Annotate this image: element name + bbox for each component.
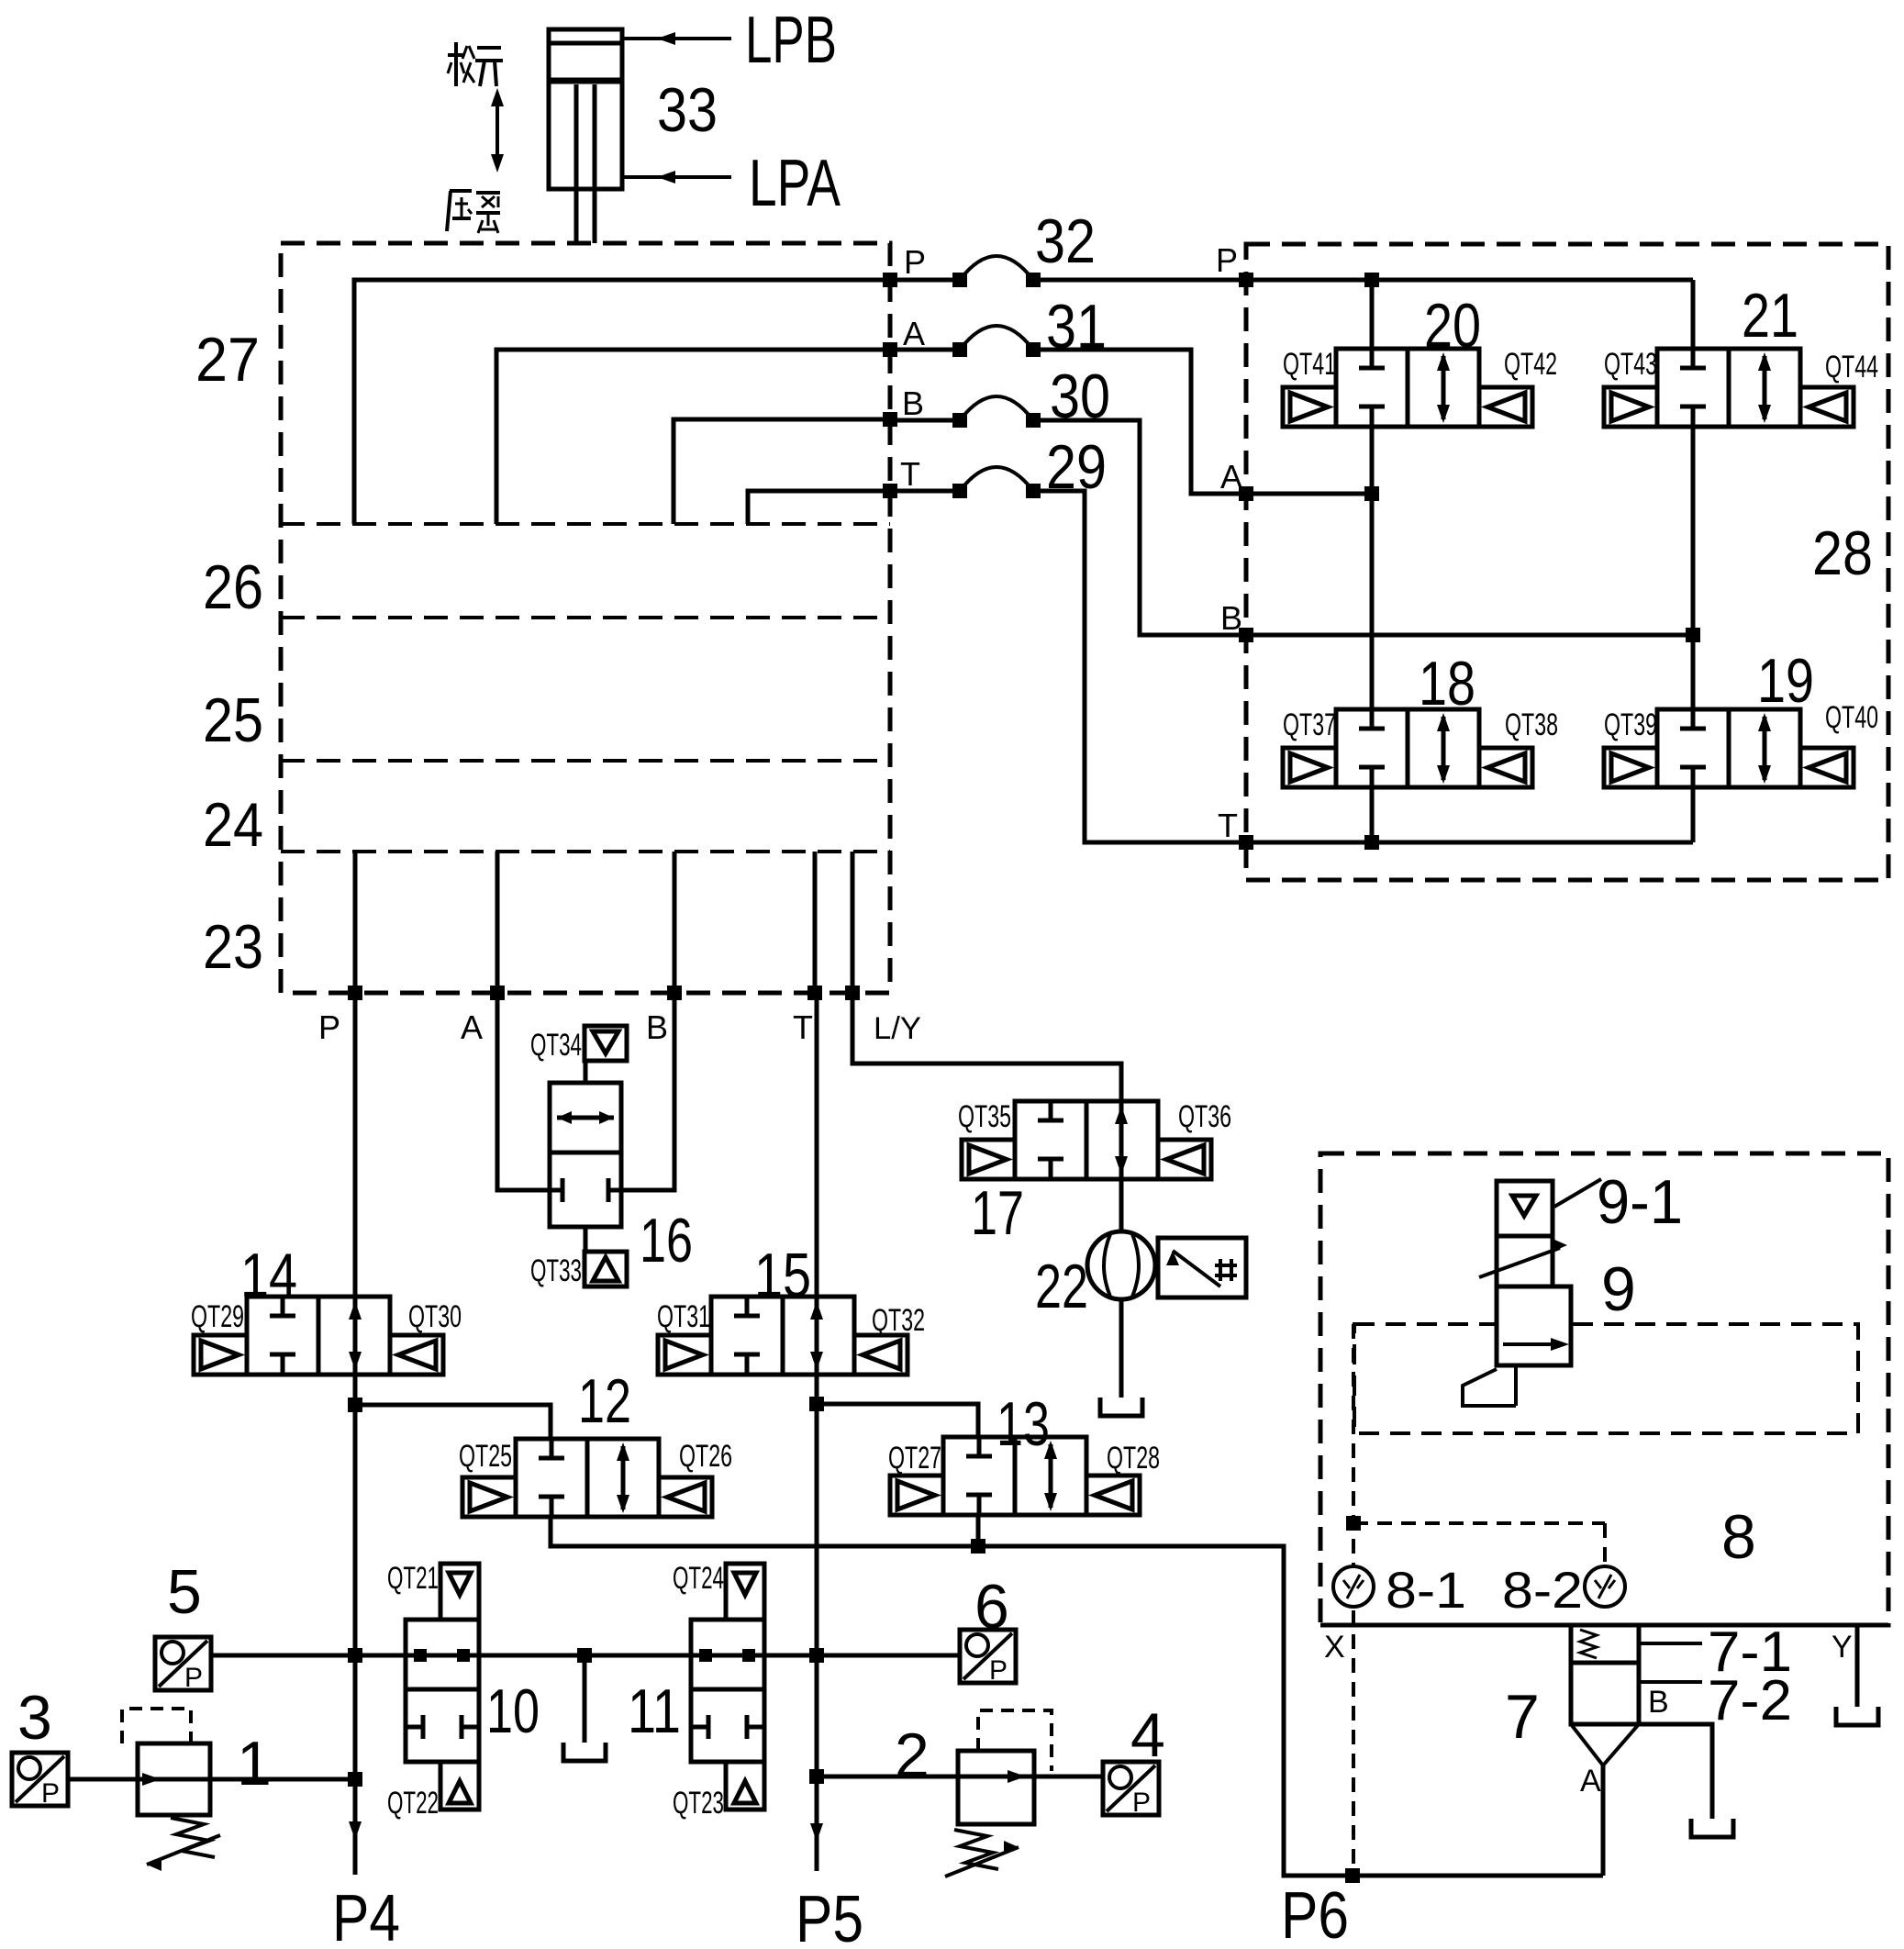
svg-text:2: 2 bbox=[895, 1721, 930, 1790]
svg-text:6: 6 bbox=[974, 1572, 1009, 1642]
svg-text:B: B bbox=[646, 1008, 668, 1046]
svg-text:11: 11 bbox=[628, 1676, 681, 1746]
svg-text:P: P bbox=[1216, 241, 1238, 279]
svg-text:19: 19 bbox=[1757, 646, 1814, 716]
svg-text:QT25: QT25 bbox=[459, 1439, 512, 1474]
svg-text:QT28: QT28 bbox=[1107, 1441, 1160, 1476]
svg-text:QT44: QT44 bbox=[1825, 350, 1878, 384]
svg-text:QT26: QT26 bbox=[679, 1439, 732, 1474]
svg-text:QT31: QT31 bbox=[657, 1299, 710, 1334]
svg-text:QT21: QT21 bbox=[387, 1561, 439, 1596]
svg-text:QT41: QT41 bbox=[1283, 347, 1336, 382]
svg-text:QT43: QT43 bbox=[1604, 347, 1657, 382]
svg-text:QT22: QT22 bbox=[387, 1786, 439, 1821]
svg-text:P5: P5 bbox=[796, 1883, 863, 1944]
svg-text:25: 25 bbox=[203, 685, 263, 755]
svg-text:12: 12 bbox=[578, 1366, 631, 1436]
svg-text:QT36: QT36 bbox=[1178, 1099, 1231, 1134]
svg-text:B: B bbox=[1220, 599, 1242, 637]
svg-text:33: 33 bbox=[657, 75, 718, 145]
svg-text:P: P bbox=[989, 1655, 1008, 1686]
svg-text:P: P bbox=[904, 243, 926, 281]
svg-text:QT29: QT29 bbox=[191, 1299, 244, 1334]
svg-text:1: 1 bbox=[237, 1729, 272, 1799]
svg-text:4: 4 bbox=[1130, 1700, 1165, 1770]
svg-text:26: 26 bbox=[203, 552, 263, 622]
svg-text:QT27: QT27 bbox=[888, 1441, 941, 1476]
svg-text:QT35: QT35 bbox=[958, 1099, 1011, 1134]
svg-text:LPA: LPA bbox=[749, 147, 841, 220]
svg-text:21: 21 bbox=[1742, 281, 1798, 351]
svg-text:28: 28 bbox=[1812, 518, 1873, 588]
svg-text:13: 13 bbox=[997, 1389, 1050, 1459]
svg-text:P: P bbox=[1132, 1788, 1151, 1818]
svg-text:8-2: 8-2 bbox=[1502, 1561, 1583, 1619]
svg-text:9: 9 bbox=[1601, 1254, 1636, 1324]
svg-text:5: 5 bbox=[167, 1557, 202, 1627]
svg-text:32: 32 bbox=[1035, 206, 1096, 276]
svg-text:QT40: QT40 bbox=[1825, 700, 1878, 735]
svg-text:QT39: QT39 bbox=[1604, 707, 1657, 742]
svg-text:QT33: QT33 bbox=[530, 1253, 582, 1288]
svg-text:QT23: QT23 bbox=[673, 1786, 724, 1821]
svg-text:T: T bbox=[793, 1008, 813, 1046]
svg-text:A: A bbox=[903, 315, 925, 352]
svg-text:10: 10 bbox=[486, 1676, 540, 1746]
svg-text:T: T bbox=[900, 455, 920, 493]
svg-text:B: B bbox=[1648, 1685, 1669, 1720]
svg-text:QT30: QT30 bbox=[408, 1299, 462, 1334]
svg-text:24: 24 bbox=[203, 790, 263, 860]
svg-text:B: B bbox=[902, 384, 924, 422]
svg-text:QT37: QT37 bbox=[1283, 707, 1336, 742]
svg-text:18: 18 bbox=[1419, 649, 1475, 718]
svg-text:27: 27 bbox=[195, 325, 260, 395]
svg-text:P: P bbox=[184, 1663, 203, 1693]
svg-text:P: P bbox=[41, 1778, 60, 1809]
svg-text:QT34: QT34 bbox=[530, 1028, 582, 1063]
svg-text:X: X bbox=[1324, 1630, 1345, 1665]
svg-text:QT24: QT24 bbox=[673, 1561, 724, 1596]
svg-text:P4: P4 bbox=[332, 1882, 400, 1944]
svg-text:15: 15 bbox=[754, 1241, 811, 1310]
svg-text:7-2: 7-2 bbox=[1708, 1669, 1792, 1732]
svg-text:8: 8 bbox=[1721, 1502, 1756, 1572]
svg-text:A: A bbox=[1220, 458, 1242, 496]
svg-text:QT38: QT38 bbox=[1505, 707, 1558, 742]
svg-text:17: 17 bbox=[971, 1178, 1024, 1248]
svg-text:T: T bbox=[1218, 807, 1238, 844]
svg-text:QT42: QT42 bbox=[1504, 347, 1557, 382]
svg-text:14: 14 bbox=[240, 1241, 297, 1310]
svg-text:8-1: 8-1 bbox=[1386, 1561, 1466, 1619]
svg-text:A: A bbox=[461, 1008, 483, 1046]
svg-text:Y: Y bbox=[1832, 1630, 1853, 1665]
svg-text:20: 20 bbox=[1424, 291, 1481, 361]
svg-text:QT32: QT32 bbox=[872, 1303, 925, 1338]
svg-text:L/Y: L/Y bbox=[874, 1011, 921, 1046]
svg-text:P6: P6 bbox=[1281, 1879, 1349, 1944]
svg-text:3: 3 bbox=[17, 1683, 52, 1753]
svg-text:LPB: LPB bbox=[745, 4, 837, 77]
svg-text:9-1: 9-1 bbox=[1597, 1167, 1683, 1237]
svg-text:22: 22 bbox=[1035, 1252, 1088, 1321]
svg-text:16: 16 bbox=[640, 1206, 693, 1275]
svg-text:A: A bbox=[1580, 1764, 1601, 1799]
svg-text:P: P bbox=[318, 1008, 340, 1046]
svg-text:23: 23 bbox=[203, 912, 263, 982]
svg-text:7: 7 bbox=[1505, 1682, 1540, 1752]
